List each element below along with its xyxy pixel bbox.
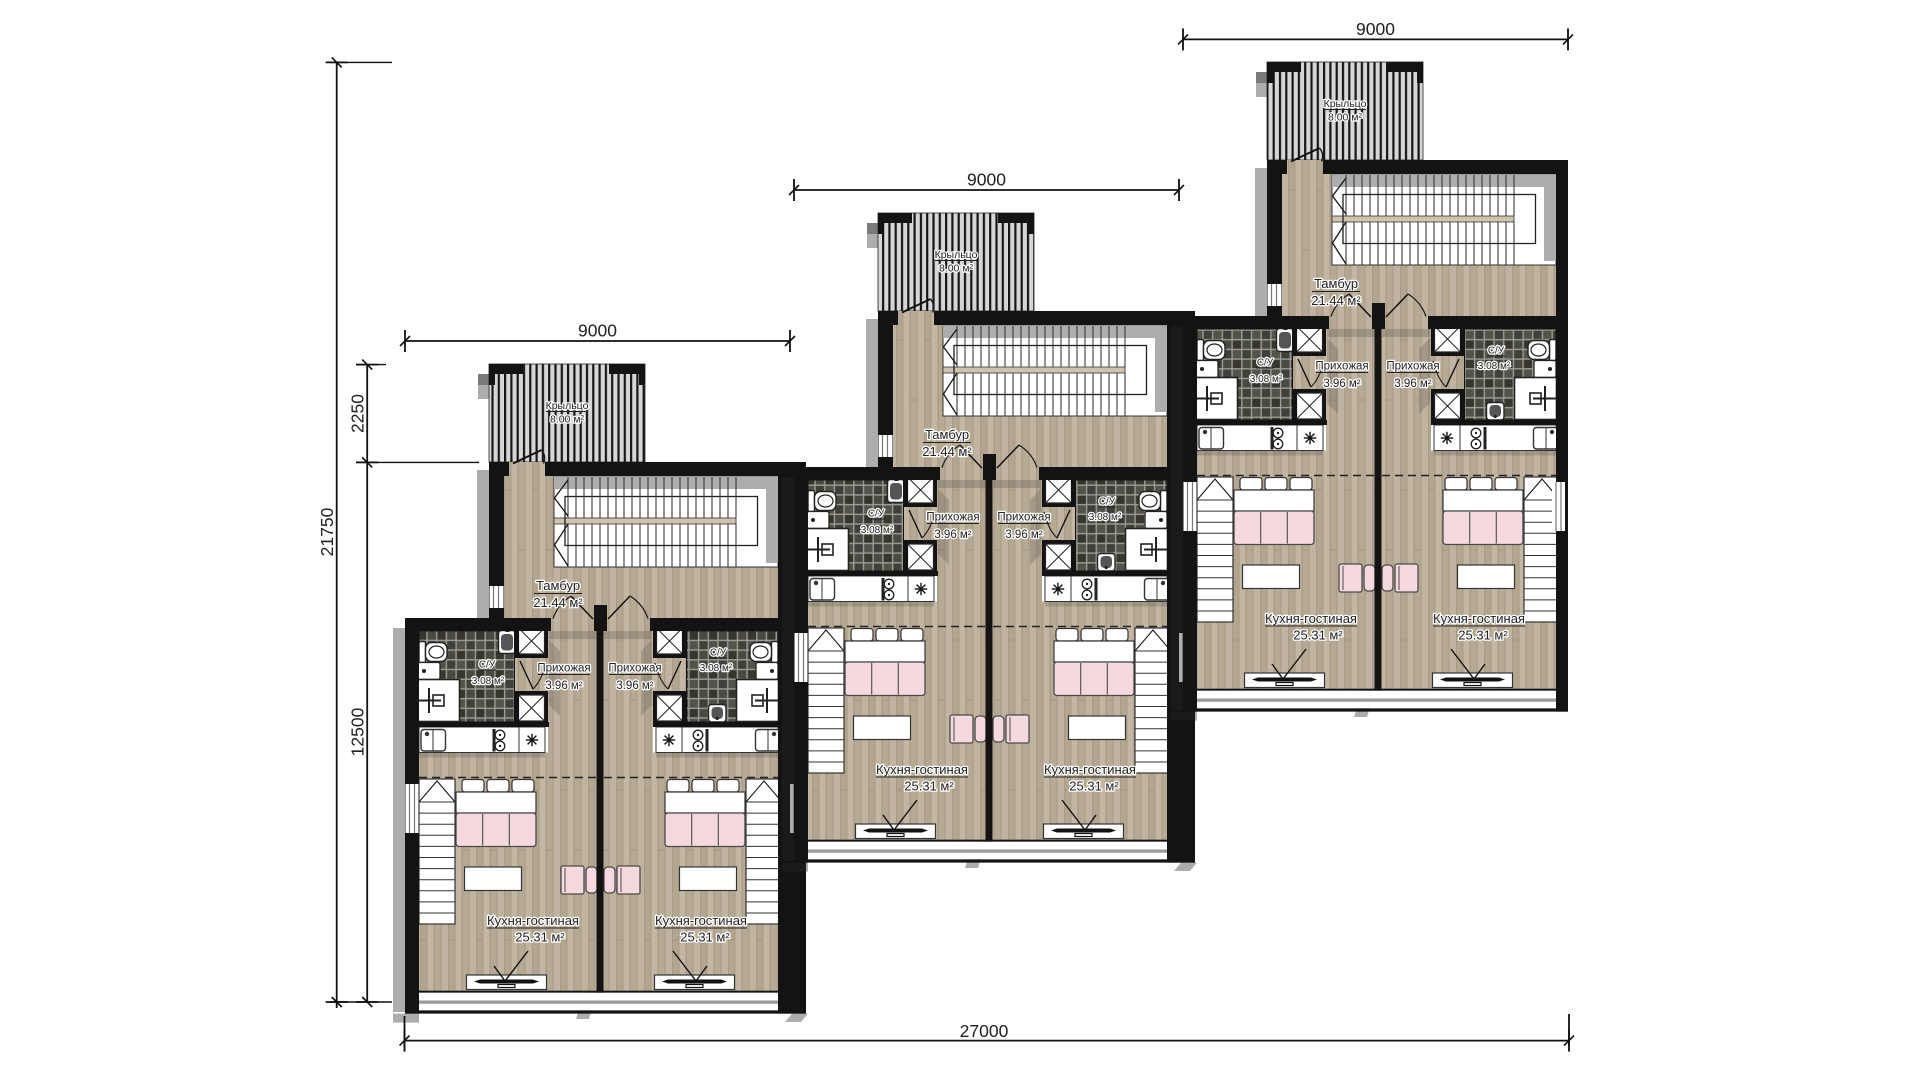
svg-text:25.31 м²: 25.31 м² xyxy=(1293,628,1343,643)
svg-text:25.31 м²: 25.31 м² xyxy=(515,930,565,945)
svg-text:Кухня-гостиная: Кухня-гостиная xyxy=(876,762,968,777)
svg-text:8.00 м²: 8.00 м² xyxy=(939,263,974,275)
svg-text:25.31 м²: 25.31 м² xyxy=(1069,779,1119,794)
svg-text:С/У: С/У xyxy=(1488,346,1505,357)
svg-text:Кухня-гостиная: Кухня-гостиная xyxy=(487,913,579,928)
svg-text:9000: 9000 xyxy=(1356,19,1395,39)
svg-text:Крыльцо: Крыльцо xyxy=(1324,98,1367,110)
svg-text:3.96 м²: 3.96 м² xyxy=(1394,378,1431,390)
svg-text:3.96 м²: 3.96 м² xyxy=(934,529,971,541)
svg-text:С/У: С/У xyxy=(868,509,885,520)
svg-text:Кухня-гостиная: Кухня-гостиная xyxy=(1265,611,1357,626)
svg-text:9000: 9000 xyxy=(578,321,617,341)
svg-text:С/У: С/У xyxy=(479,660,496,671)
svg-text:Кухня-гостиная: Кухня-гостиная xyxy=(1433,611,1525,626)
svg-text:Прихожая: Прихожая xyxy=(608,663,661,675)
svg-text:Кухня-гостиная: Кухня-гостиная xyxy=(655,913,747,928)
svg-text:С/У: С/У xyxy=(1257,358,1274,369)
svg-text:Прихожая: Прихожая xyxy=(537,663,590,675)
svg-text:3.96 м²: 3.96 м² xyxy=(545,680,582,692)
svg-text:25.31 м²: 25.31 м² xyxy=(904,779,954,794)
svg-text:С/У: С/У xyxy=(710,648,727,659)
svg-text:21.44 м²: 21.44 м² xyxy=(922,444,972,459)
svg-text:Тамбур: Тамбур xyxy=(536,578,580,593)
svg-text:21.44 м²: 21.44 м² xyxy=(1311,293,1361,308)
svg-text:27000: 27000 xyxy=(960,1021,1009,1041)
svg-text:Тамбур: Тамбур xyxy=(925,427,969,442)
svg-text:3.08 м²: 3.08 м² xyxy=(700,663,733,674)
svg-text:3.08 м²: 3.08 м² xyxy=(1478,361,1511,372)
svg-text:12500: 12500 xyxy=(348,707,368,756)
svg-text:3.96 м²: 3.96 м² xyxy=(1323,378,1360,390)
svg-text:Прихожая: Прихожая xyxy=(926,512,979,524)
svg-text:Прихожая: Прихожая xyxy=(1386,361,1439,373)
svg-text:Кухня-гостиная: Кухня-гостиная xyxy=(1044,762,1136,777)
svg-text:9000: 9000 xyxy=(967,170,1006,190)
svg-text:Прихожая: Прихожая xyxy=(997,512,1050,524)
svg-text:3.08 м²: 3.08 м² xyxy=(472,676,505,687)
svg-text:8.00 м²: 8.00 м² xyxy=(550,414,585,426)
svg-text:21750: 21750 xyxy=(317,507,337,556)
svg-text:3.96 м²: 3.96 м² xyxy=(616,680,653,692)
svg-text:Крыльцо: Крыльцо xyxy=(546,400,589,412)
svg-text:Крыльцо: Крыльцо xyxy=(935,249,978,261)
svg-text:3.08 м²: 3.08 м² xyxy=(1250,374,1283,385)
svg-text:3.96 м²: 3.96 м² xyxy=(1005,529,1042,541)
svg-text:21.44 м²: 21.44 м² xyxy=(533,595,583,610)
svg-text:3.08 м²: 3.08 м² xyxy=(861,525,894,536)
svg-text:25.31 м²: 25.31 м² xyxy=(1458,628,1508,643)
svg-text:Прихожая: Прихожая xyxy=(1315,361,1368,373)
svg-text:2250: 2250 xyxy=(348,394,368,433)
svg-text:Тамбур: Тамбур xyxy=(1314,276,1358,291)
svg-text:С/У: С/У xyxy=(1099,497,1116,508)
svg-text:8.00 м²: 8.00 м² xyxy=(1328,112,1363,124)
svg-text:25.31 м²: 25.31 м² xyxy=(680,930,730,945)
svg-text:3.08 м²: 3.08 м² xyxy=(1089,512,1122,523)
